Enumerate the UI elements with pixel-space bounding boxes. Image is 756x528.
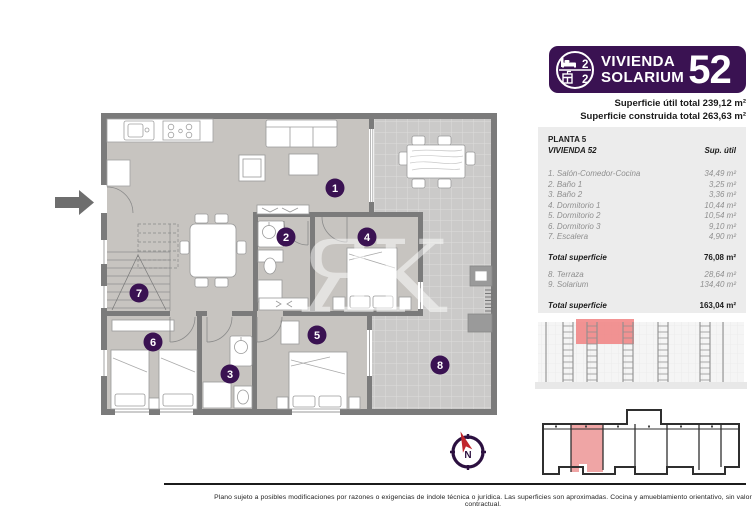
table-row: 9. Solarium134,40 m² [548, 280, 736, 291]
washbasin-icon [230, 336, 252, 366]
coffee-table-icon [239, 155, 265, 181]
ladder-icon [485, 290, 493, 311]
room-badge-living: 1 [326, 179, 345, 198]
room-badge-dorm2: 5 [308, 326, 327, 345]
svg-text:2: 2 [283, 232, 289, 244]
dining-table-icon [190, 224, 236, 277]
svg-text:2: 2 [582, 59, 588, 71]
entry-arrow-icon [55, 190, 94, 215]
svg-text:1: 1 [332, 183, 338, 195]
svg-text:8: 8 [437, 360, 443, 372]
footer-divider [164, 483, 746, 485]
svg-text:5: 5 [314, 330, 320, 342]
table-row: 2. Baño 13,25 m² [548, 180, 736, 191]
bed-icon [561, 58, 576, 68]
superficie-util-total: Superficie útil total 239,12 m² [486, 97, 746, 110]
compass-icon: N [450, 430, 486, 470]
badge-title-line1: VIVIENDA [601, 54, 684, 70]
nightstand-icon [149, 398, 159, 409]
svg-text:2: 2 [582, 74, 588, 86]
svg-text:6: 6 [150, 337, 156, 349]
outdoor-table-icon [407, 145, 465, 178]
nightstand-icon [277, 397, 288, 409]
wardrobe-icon [281, 321, 299, 344]
room-badge-bath2: 3 [221, 365, 240, 384]
table-row: 4. Dormitorio 110,44 m² [548, 201, 736, 212]
bedrooms-bathrooms-icon: 2 2 [554, 49, 596, 91]
shower-icon [203, 382, 231, 408]
subtotal-row: Total superficie76,08 m² [548, 252, 736, 264]
table-row: 7. Escalera4,90 m² [548, 232, 736, 243]
bath-icon [563, 71, 572, 83]
table-row: 3. Baño 23,36 m² [548, 190, 736, 201]
svg-text:N: N [464, 450, 471, 461]
toilet-icon [234, 386, 252, 408]
stove-icon [163, 121, 200, 140]
vivienda-label: VIVIENDA 52 [548, 145, 597, 156]
unit-number: 52 [688, 50, 731, 90]
building-elevation [535, 316, 747, 402]
unit-highlight [576, 319, 634, 344]
wardrobe-icon [257, 205, 309, 214]
table-row: 5. Dormitorio 210,54 m² [548, 211, 736, 222]
svg-text:3: 3 [227, 369, 233, 381]
planta-label: PLANTA 5 [548, 135, 736, 145]
table-row: 6. Dormitorio 39,10 m² [548, 222, 736, 233]
superficie-construida-total: Superficie construida total 263,63 m² [486, 110, 746, 123]
unit-highlight [571, 424, 603, 472]
table-row: 8. Terraza28,64 m² [548, 270, 736, 281]
badge-title-line2: SOLARIUM [601, 70, 684, 86]
svg-text:7: 7 [136, 288, 142, 300]
floor-key-plan [535, 404, 747, 486]
sup-util-column-header: Sup. útil [704, 145, 736, 156]
room-badge-stairs: 7 [130, 284, 149, 303]
room-badge-dorm1: 4 [358, 228, 377, 247]
nightstand-icon [349, 397, 360, 409]
table-row: 1. Salón-Comedor-Cocina34,49 m² [548, 169, 736, 180]
surface-totals: Superficie útil total 239,12 m² Superfic… [486, 97, 746, 123]
sofa-icon [266, 120, 337, 147]
room-badge-bath1: 2 [277, 228, 296, 247]
area-table: PLANTA 5 VIVIENDA 52 Sup. útil 1. Salón-… [538, 127, 746, 313]
side-table-icon [289, 154, 318, 175]
closet-icon [112, 320, 174, 331]
title-badge: 2 2 VIVIENDA SOLARIUM 52 [549, 46, 746, 93]
disclaimer-text: Plano sujeto a posibles modificaciones p… [210, 494, 756, 508]
room-badge-dorm3: 6 [144, 333, 163, 352]
svg-text:4: 4 [364, 232, 371, 244]
floor-plan: ЯK 1 2 3 4 5 6 7 8 N [50, 105, 535, 490]
kitchen-sink-icon [124, 121, 154, 140]
total-row: Total superficie163,04 m² [548, 300, 736, 312]
room-badge-terrace: 8 [431, 356, 450, 375]
